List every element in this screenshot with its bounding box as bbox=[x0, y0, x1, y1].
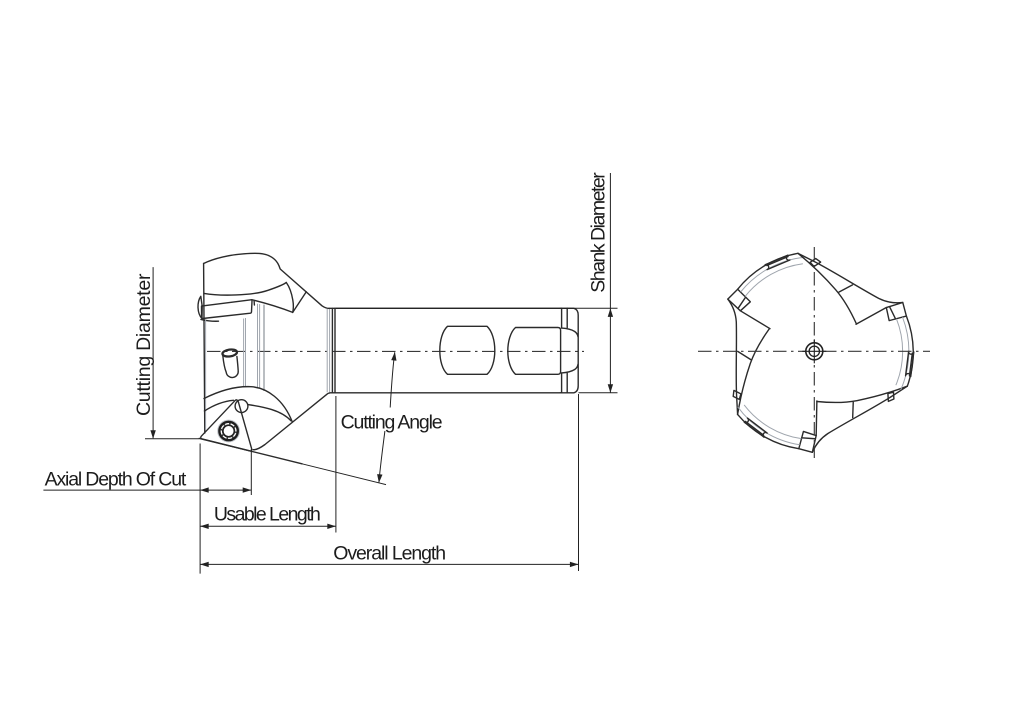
svg-text:Cutting Angle: Cutting Angle bbox=[341, 411, 443, 433]
svg-text:Axial Depth Of Cut: Axial Depth Of Cut bbox=[45, 469, 187, 491]
svg-text:Usable Length: Usable Length bbox=[214, 503, 321, 525]
svg-text:Cutting Diameter: Cutting Diameter bbox=[133, 273, 155, 416]
svg-text:Overall Length: Overall Length bbox=[333, 542, 446, 564]
svg-text:Shank Diameter: Shank Diameter bbox=[588, 172, 610, 293]
